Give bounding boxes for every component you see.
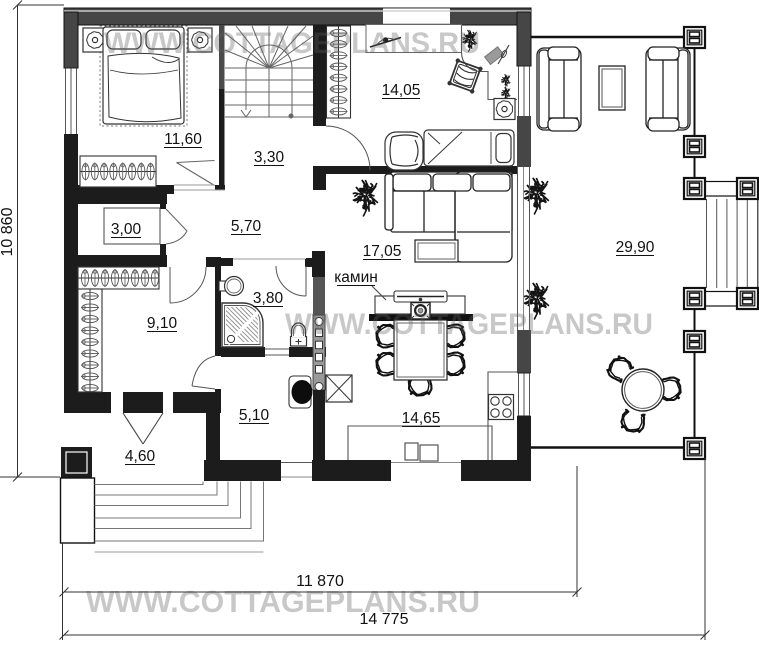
svg-text:WWW.COTTAGEPLANS.RU: WWW.COTTAGEPLANS.RU	[285, 308, 653, 341]
svg-text:3,80: 3,80	[253, 290, 284, 307]
svg-text:10 860: 10 860	[0, 207, 16, 256]
svg-text:11,60: 11,60	[164, 131, 202, 148]
svg-text:5,70: 5,70	[231, 218, 262, 235]
svg-text:3,00: 3,00	[111, 221, 142, 238]
svg-text:камин: камин	[334, 269, 378, 286]
svg-text:5,10: 5,10	[239, 407, 270, 424]
svg-text:17,05: 17,05	[363, 243, 402, 260]
svg-text:14 775: 14 775	[360, 611, 409, 628]
svg-text:3,30: 3,30	[254, 149, 285, 166]
svg-text:4,60: 4,60	[125, 448, 156, 465]
svg-text:14,05: 14,05	[382, 82, 421, 99]
svg-text:29,90: 29,90	[616, 239, 655, 256]
svg-text:WWW.COTTAGEPLANS.RU: WWW.COTTAGEPLANS.RU	[104, 27, 480, 60]
svg-text:9,10: 9,10	[147, 315, 178, 332]
svg-text:WWW.COTTAGEPLANS.RU: WWW.COTTAGEPLANS.RU	[86, 584, 480, 619]
svg-text:14,65: 14,65	[402, 410, 441, 427]
svg-text:11 870: 11 870	[296, 573, 344, 590]
